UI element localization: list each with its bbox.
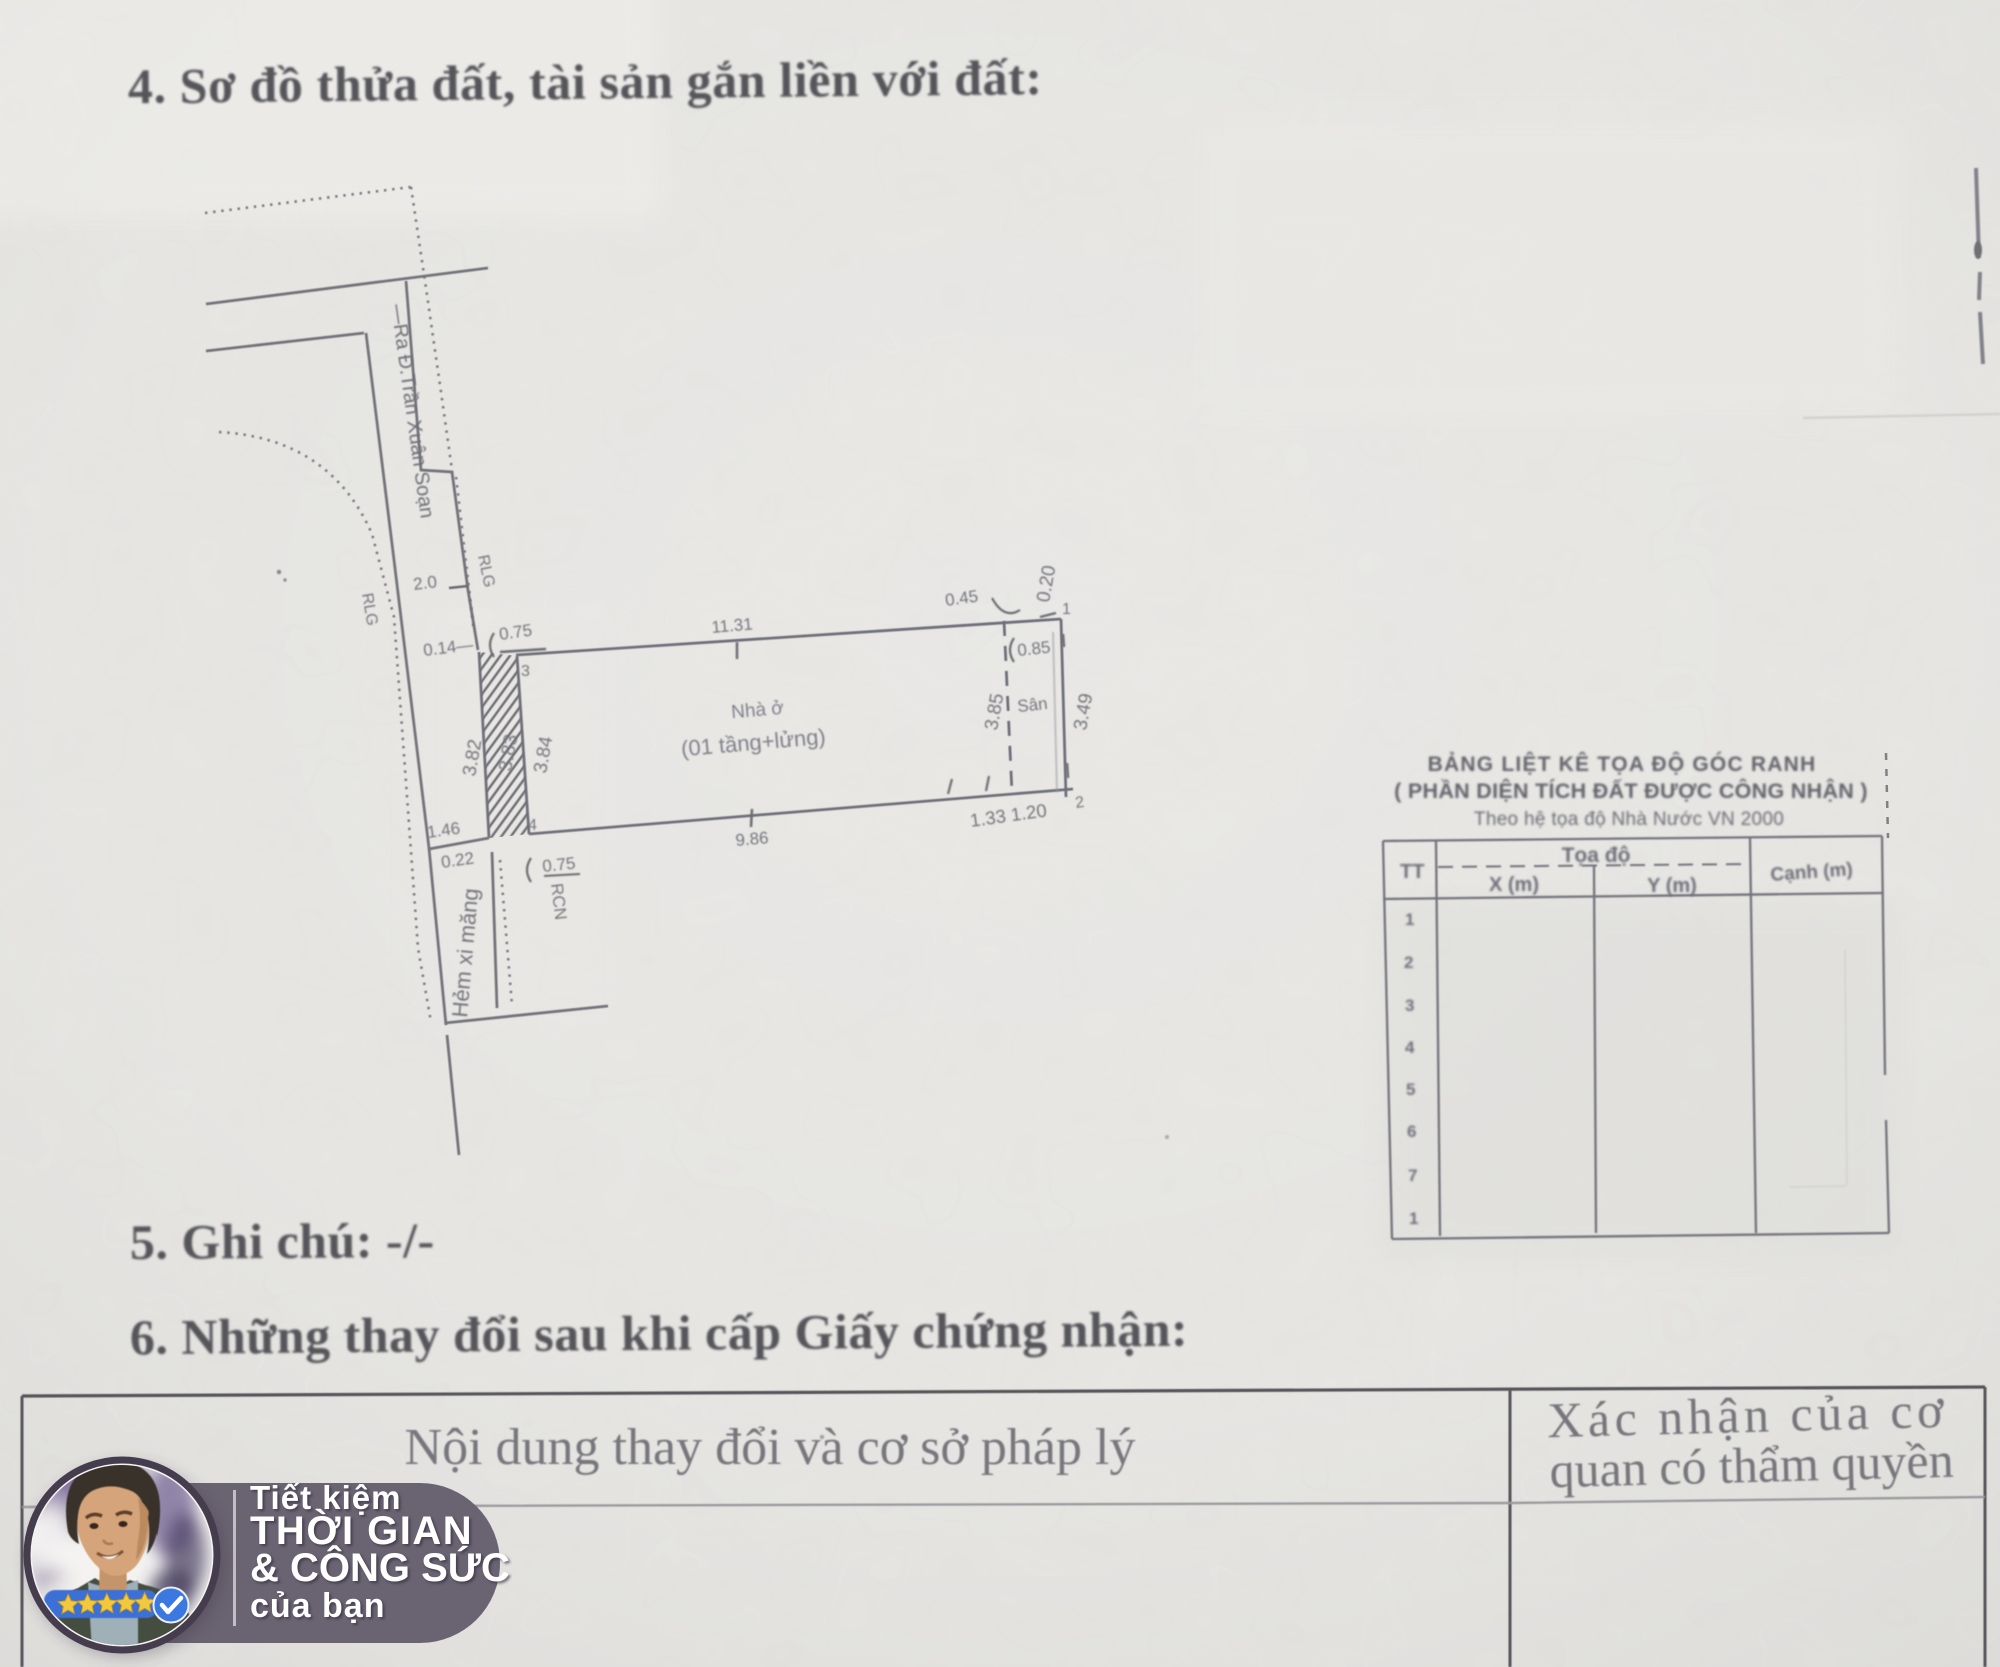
svg-text:( PHẦN DIỆN TÍCH ĐẤT ĐƯỢC CÔNG: ( PHẦN DIỆN TÍCH ĐẤT ĐƯỢC CÔNG NHẬN ) [1394, 778, 1868, 803]
svg-text:6. Những thay đổi sau khi cấp: 6. Những thay đổi sau khi cấp Giấy chứng… [130, 1301, 1189, 1365]
svg-text:0.85: 0.85 [1016, 638, 1051, 660]
svg-text:3: 3 [1405, 996, 1414, 1015]
svg-text:Theo hệ tọa độ Nhà Nước VN 200: Theo hệ tọa độ Nhà Nước VN 2000 [1474, 809, 1784, 830]
svg-text:5: 5 [1406, 1080, 1415, 1099]
svg-text:1: 1 [1062, 601, 1071, 618]
svg-text:Sân: Sân [1016, 694, 1048, 716]
svg-text:9.86: 9.86 [735, 828, 770, 850]
svg-text:6: 6 [1407, 1122, 1416, 1141]
svg-text:TT: TT [1400, 861, 1424, 883]
svg-text:1: 1 [1409, 1209, 1418, 1228]
svg-text:7: 7 [1408, 1166, 1417, 1185]
svg-text:quan có thẩm quyền: quan có thẩm quyền [1549, 1432, 1954, 1499]
svg-text:4. Sơ đồ thửa đất, tài sản gắn: 4. Sơ đồ thửa đất, tài sản gắn liền với … [128, 49, 1043, 114]
svg-text:X (m): X (m) [1489, 874, 1539, 896]
svg-text:của bạn: của bạn [250, 1587, 385, 1625]
svg-text:11.31: 11.31 [711, 614, 754, 637]
svg-text:Y (m): Y (m) [1647, 875, 1697, 897]
svg-text:1: 1 [1405, 910, 1414, 929]
svg-text:0.75: 0.75 [541, 854, 576, 876]
svg-text:4: 4 [1405, 1038, 1415, 1057]
svg-text:5. Ghi chú: -/-: 5. Ghi chú: -/- [130, 1212, 435, 1270]
svg-text:Nội dung thay đổi và cơ sở phá: Nội dung thay đổi và cơ sở pháp lý [405, 1419, 1136, 1476]
svg-text:& CÔNG SỨC: & CÔNG SỨC [250, 1544, 510, 1590]
svg-text:3: 3 [521, 663, 530, 680]
svg-text:4: 4 [528, 817, 537, 834]
svg-text:2: 2 [1404, 953, 1413, 972]
svg-text:2.0: 2.0 [412, 572, 438, 594]
svg-text:Tọa độ: Tọa độ [1562, 844, 1631, 867]
svg-text:BẢNG LIỆT KÊ TỌA ĐỘ GÓC RANH: BẢNG LIỆT KÊ TỌA ĐỘ GÓC RANH [1428, 752, 1817, 776]
